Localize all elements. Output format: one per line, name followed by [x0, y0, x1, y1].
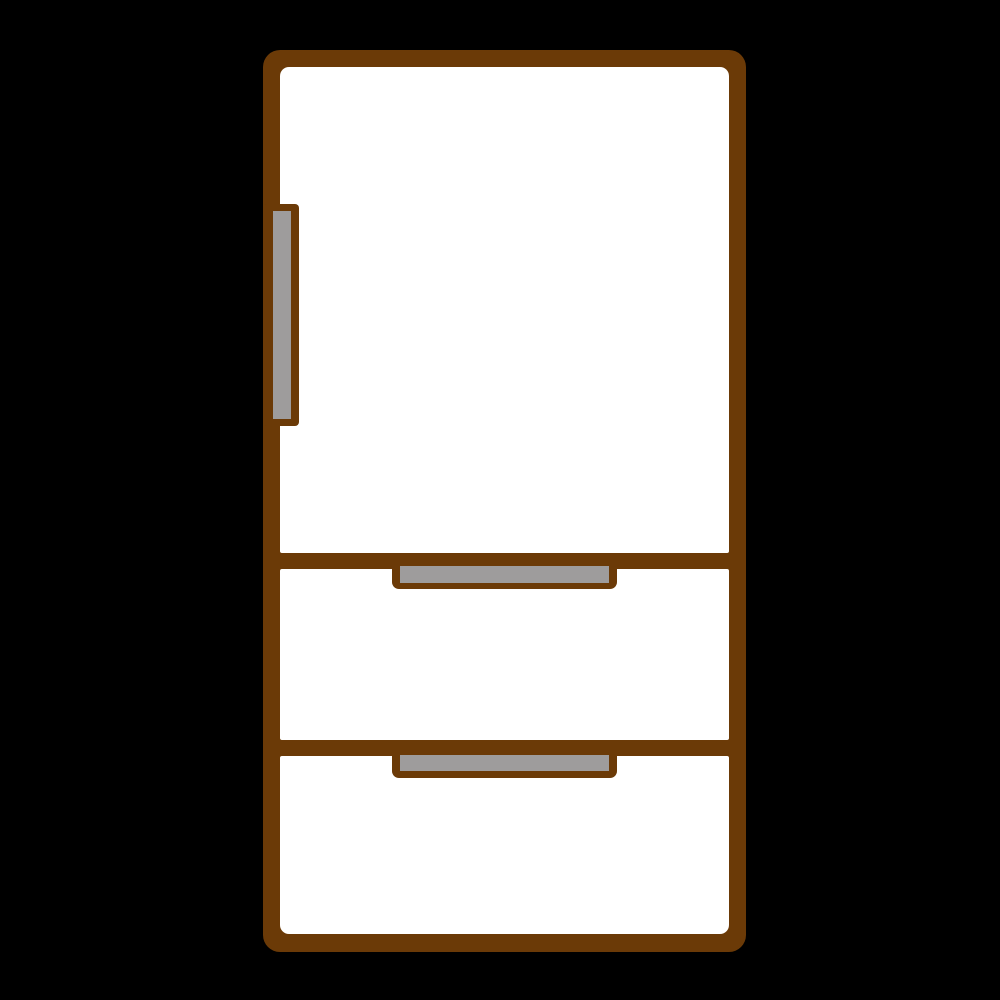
- lower-drawer-handle-grip: [400, 755, 609, 771]
- refrigerator-drawer-lower: [280, 756, 729, 934]
- door-handle-outline: [263, 204, 299, 426]
- refrigerator-body: [263, 50, 746, 952]
- upper-drawer-handle-outline: [392, 553, 617, 589]
- door-handle-grip: [273, 211, 291, 419]
- lower-drawer-handle-outline: [392, 740, 617, 778]
- refrigerator-drawer-upper: [280, 569, 729, 740]
- illustration-background: [0, 0, 1000, 1000]
- upper-drawer-handle-grip: [400, 566, 609, 583]
- refrigerator-door: [280, 67, 729, 553]
